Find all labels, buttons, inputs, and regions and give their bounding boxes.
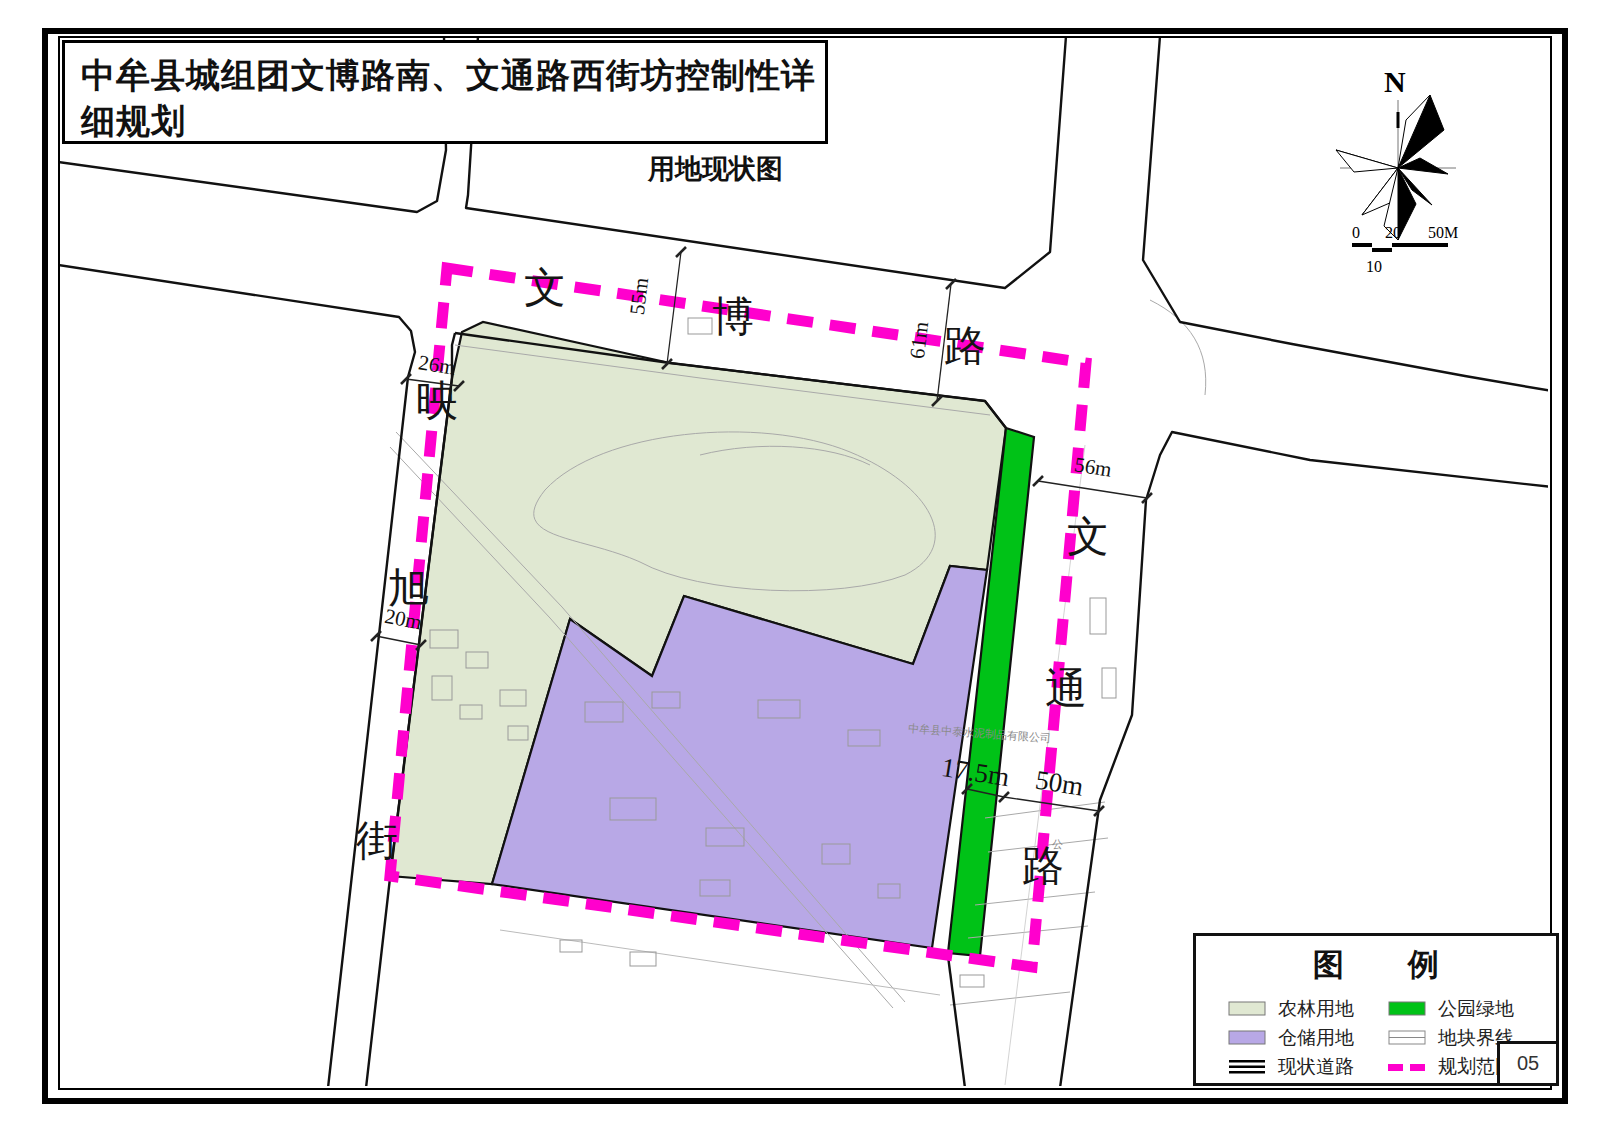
scale-label-50m: 50M	[1428, 224, 1458, 241]
farmland-swatch	[1228, 1001, 1266, 1017]
legend-title: 图 例	[1196, 944, 1556, 986]
road-label-yingxu-1: 映	[416, 378, 458, 424]
road-label-wenbo-2: 博	[712, 294, 754, 340]
legend-box: 图 例 农林用地 现状道路 仓储用地	[1193, 933, 1559, 1086]
dimension-label-56m: 56m	[1073, 452, 1114, 482]
park-green-swatch	[1388, 1001, 1426, 1017]
parcel-line-swatch	[1388, 1030, 1426, 1046]
dimension-label-26m: 26m	[417, 350, 458, 380]
legend-title-char-2: 例	[1408, 944, 1439, 986]
road-label-wenbo-3: 路	[944, 323, 986, 369]
legend-item-existing-road: 现状道路	[1228, 1056, 1388, 1077]
existing-road-swatch	[1228, 1059, 1266, 1075]
road-northeast-edge	[1143, 36, 1552, 391]
plan-title: 中牟县城组团文博路南、文通路西街坊控制性详细规划	[81, 53, 825, 145]
road-wentong-west-lower-edge	[948, 956, 965, 1088]
scale-label-0: 0	[1352, 224, 1360, 241]
legend-item-park-green: 公园绿地	[1388, 998, 1548, 1019]
legend-title-char-1: 图	[1313, 944, 1344, 986]
scale-label-20: 20	[1385, 224, 1401, 241]
legend-label: 公园绿地	[1438, 996, 1514, 1022]
legend-label: 仓储用地	[1278, 1025, 1354, 1051]
road-label-yingxu-2: 旭	[387, 566, 429, 612]
plan-sheet: 26m 20m 55m 61m 56m 17.5m 50m 文 博 路 映 旭 …	[0, 0, 1600, 1131]
road-label-wentong-2: 通	[1045, 666, 1087, 712]
road-side-note: 公	[1052, 838, 1063, 850]
dimension-label-61m: 61m	[905, 320, 933, 360]
legend-item-warehouse: 现状道路 仓储用地	[1228, 1027, 1388, 1048]
page-number-box: 05	[1497, 1041, 1559, 1086]
title-block: 中牟县城组团文博路南、文通路西街坊控制性详细规划 用地现状图	[62, 40, 828, 144]
legend-label: 现状道路	[1278, 1054, 1354, 1080]
road-label-yingxu-3: 街	[356, 818, 398, 864]
scale-label-10: 10	[1366, 258, 1382, 275]
warehouse-swatch	[1228, 1030, 1266, 1046]
north-arrow: N	[1336, 65, 1456, 240]
north-label: N	[1384, 65, 1406, 98]
road-label-wentong-1: 文	[1067, 514, 1109, 560]
page-number: 05	[1517, 1052, 1539, 1075]
dimension-label-55m: 55m	[625, 276, 653, 316]
scale-bar: 0 20 50M 10	[1352, 224, 1458, 275]
landuse-regions	[390, 322, 1034, 956]
legend-label: 农林用地	[1278, 996, 1354, 1022]
road-yingxu-west-edge	[58, 265, 415, 1088]
legend-item-farmland: 农林用地	[1228, 998, 1388, 1019]
planning-scope-swatch	[1388, 1059, 1426, 1075]
plan-subtitle: 用地现状图	[65, 151, 783, 187]
road-label-wenbo-1: 文	[524, 265, 566, 311]
compass-rose	[1336, 95, 1448, 240]
